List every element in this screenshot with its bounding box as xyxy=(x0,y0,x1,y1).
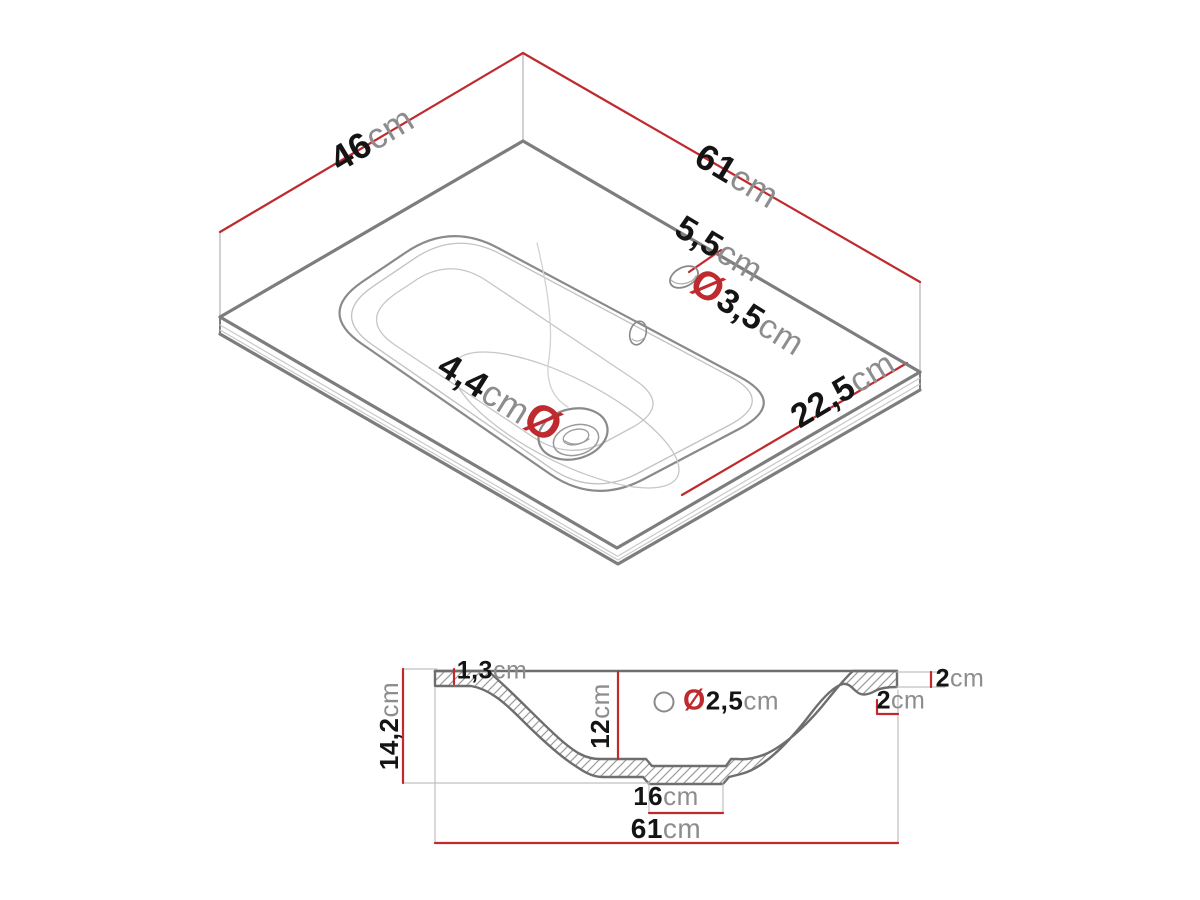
dim-label-overflow-diameter: Ø2,5cm xyxy=(683,687,779,716)
slab-side-lines xyxy=(220,325,920,560)
isometric-view xyxy=(220,53,920,564)
dim-value: 2 xyxy=(936,665,950,693)
dim-unit: cm xyxy=(663,813,701,844)
dim-unit: cm xyxy=(743,686,779,716)
washbasin-dimension-diagram: 46cm 61cm 5,5cm Ø3,5cm 22,5cm 4,4cmØ 1,3… xyxy=(0,0,1200,900)
slab-top-face xyxy=(220,141,920,548)
dim-unit: cm xyxy=(374,682,404,718)
bowl-floor-lines xyxy=(377,243,697,514)
dim-label-total-width: 61cm xyxy=(631,815,701,843)
dim-label-rim-thickness: 1,3cm xyxy=(457,659,528,684)
dim-unit: cm xyxy=(493,657,527,685)
iso-extension-lines xyxy=(220,53,920,371)
dim-value: 61 xyxy=(631,813,663,844)
dim-unit: cm xyxy=(950,665,984,693)
dim-value: 14,2 xyxy=(374,718,404,771)
dim-value: 2,5 xyxy=(706,686,744,716)
diameter-icon: Ø xyxy=(683,685,706,717)
overflow-hole-section xyxy=(655,693,674,712)
dim-value: 16 xyxy=(633,781,663,811)
dim-unit: cm xyxy=(891,687,925,715)
dim-unit: cm xyxy=(663,781,699,811)
section-wall xyxy=(435,671,897,784)
dim-value: 12 xyxy=(585,719,615,749)
dim-label-base-width: 16cm xyxy=(633,783,699,809)
dim-label-total-height: 14,2cm xyxy=(376,682,402,770)
dim-label-bowl-depth: 12cm xyxy=(587,683,613,749)
dim-unit: cm xyxy=(585,683,615,719)
dim-value: 2 xyxy=(877,687,891,715)
dim-label-right-edge-side: 2cm xyxy=(877,689,926,714)
dim-label-right-edge-top: 2cm xyxy=(936,667,985,692)
dim-value: 1,3 xyxy=(457,657,493,685)
diagram-linework xyxy=(0,0,1200,900)
